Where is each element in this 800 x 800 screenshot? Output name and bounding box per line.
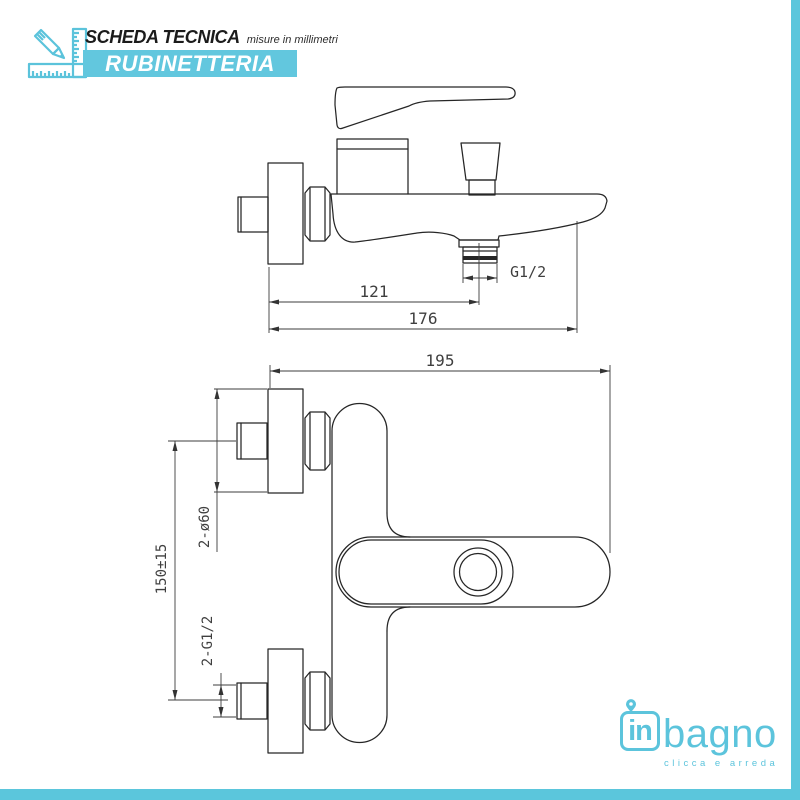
side-view-drawing: 121 176 G1/2 [238,87,607,333]
side-view-dimensions: 121 176 G1/2 [269,221,577,333]
side-diverter-knob [461,143,500,180]
side-union-nut [305,187,330,241]
right-edge-accent [791,0,800,800]
logo-name: bagno [663,717,777,751]
side-wall-flange [268,163,303,264]
top-body-column [332,403,387,742]
dim-inlet-distance: 150±15 [154,544,170,595]
top-view-drawing: 195 2-ø60 150±15 2-G1/2 [154,351,610,753]
top-handle-outer [336,537,610,607]
bottom-edge-accent [0,789,800,800]
top-upper-flange [268,389,303,493]
side-body [337,149,408,194]
logo-prefix: in [628,715,652,748]
dim-flanges: 2-ø60 [197,506,213,548]
side-spout [331,194,607,242]
outlet-thread-label: G1/2 [510,263,546,281]
brand-logo: in bagno clicca e arreda [620,697,778,769]
logo-tagline: clicca e arreda [664,758,778,769]
top-lower-nut [305,672,330,730]
side-wall-pipe [238,197,268,232]
side-lever-handle [335,87,515,129]
top-diverter-circle [454,548,502,596]
technical-drawing: 121 176 G1/2 [0,0,800,800]
side-cartridge-collar [337,139,408,149]
top-view-dimensions: 195 2-ø60 150±15 2-G1/2 [154,351,610,717]
dim-wall-to-spout-end: 176 [409,309,438,328]
dim-inlet-threads: 2-G1/2 [200,616,216,667]
top-upper-nut [305,412,330,470]
dim-total-depth: 195 [426,351,455,370]
dim-wall-to-outlet: 121 [360,282,389,301]
top-lower-flange [268,649,303,753]
logo-in-box: in [620,711,660,751]
location-pin-icon [625,699,637,713]
